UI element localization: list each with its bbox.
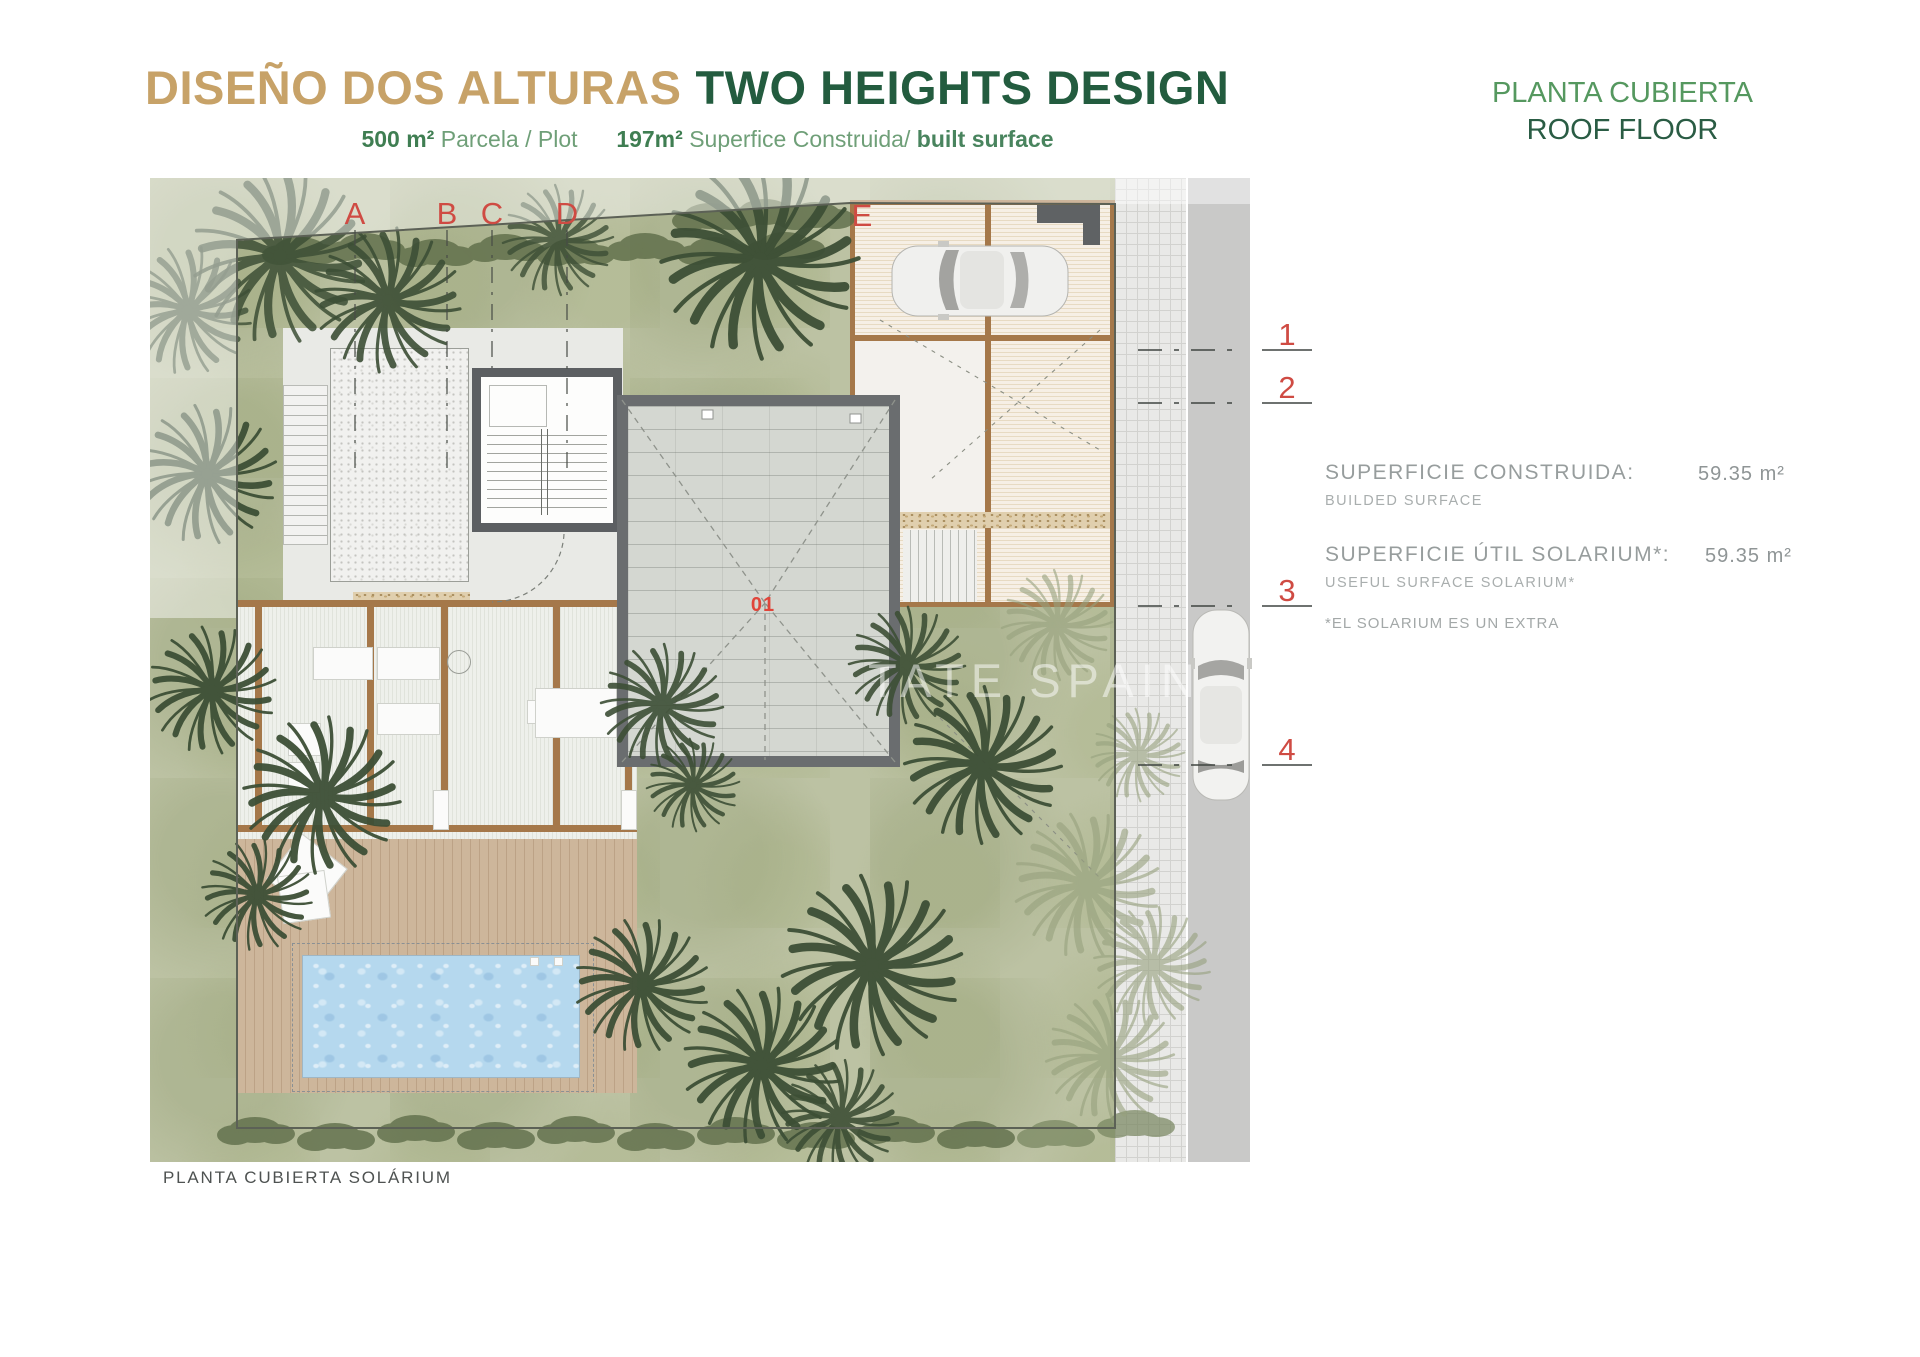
info-row-solarium: SUPERFICIE ÚTIL SOLARIUM*: 59.35 m² USEF… [1325,543,1805,591]
solarium-surface-value: 59.35 m² [1705,545,1792,568]
unit-label: 01 [751,594,775,616]
built-surface-value: 59.35 m² [1698,463,1785,486]
surface-info-panel: SUPERFICIE CONSTRUIDA: 59.35 m² BUILDED … [1325,461,1805,632]
grid-number-2: 2 [1278,370,1295,405]
plan-overlay: A B C D E 1 2 3 4 01 TATE SPAIN [150,178,1320,1162]
grid-number-4: 4 [1278,732,1295,767]
title-english: TWO HEIGHTS DESIGN [695,61,1229,114]
solarium-surface-label: SUPERFICIE ÚTIL SOLARIUM*: [1325,543,1670,566]
plot-area-value: 500 m² [361,126,434,152]
grid-letter-d: D [556,196,578,231]
plan-caption: PLANTA CUBIERTA SOLÁRIUM [163,1168,452,1188]
site-plan: A B C D E 1 2 3 4 01 TATE SPAIN [150,178,1250,1162]
floor-title: PLANTA CUBIERTA ROOF FLOOR [1470,75,1775,149]
grid-number-1: 1 [1278,317,1295,352]
info-row-built: SUPERFICIE CONSTRUIDA: 59.35 m² BUILDED … [1325,461,1805,509]
grid-number-3: 3 [1278,573,1295,608]
shrub-row-bottom [217,1115,1015,1151]
built-area-label-en: built surface [917,126,1054,152]
page-subtitle: 500 m² Parcela / Plot 197m² Superfice Co… [145,126,1270,153]
built-surface-label: SUPERFICIE CONSTRUIDA: [1325,461,1635,484]
built-surface-sublabel: BUILDED SURFACE [1325,493,1805,509]
grid-letter-a: A [345,196,366,231]
floor-title-en: ROOF FLOOR [1470,112,1775,149]
solarium-surface-sublabel: USEFUL SURFACE SOLARIUM* [1325,575,1805,591]
grid-letter-b: B [437,196,458,231]
roof-drain-icon [850,414,861,423]
title-spanish: DISEÑO DOS ALTURAS [145,61,681,114]
roof-drain-icon [702,410,713,419]
built-area-label: Superfice Construida/ [689,126,910,152]
door-swing-arc [492,534,564,602]
plan-sheet: DISEÑO DOS ALTURASTWO HEIGHTS DESIGN 500… [0,0,1920,1357]
grid-letter-e: E [852,198,873,233]
watermark: TATE SPAIN [868,654,1202,707]
palm-shadows [980,548,1225,1131]
plot-area-label: Parcela / Plot [441,126,578,152]
floor-title-es: PLANTA CUBIERTA [1470,75,1775,112]
page-title: DISEÑO DOS ALTURASTWO HEIGHTS DESIGN [145,60,1229,115]
solarium-note: *EL SOLARIUM ES UN EXTRA [1325,615,1805,632]
grid-letter-c: C [481,196,503,231]
built-area-value: 197m² [616,126,682,152]
